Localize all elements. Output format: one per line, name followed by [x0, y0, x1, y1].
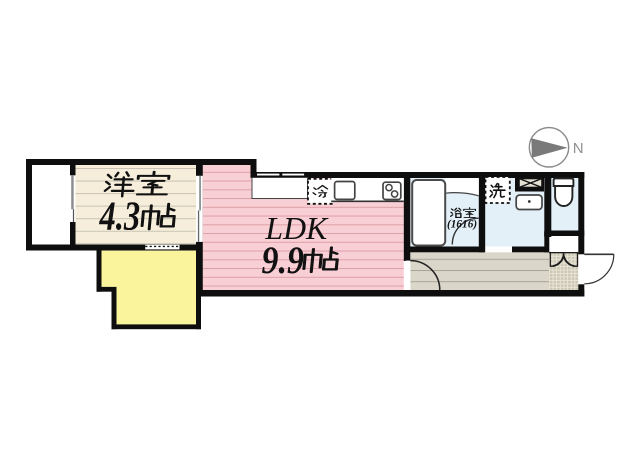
svg-text:4.3: 4.3 [99, 193, 140, 238]
svg-text:N: N [573, 140, 584, 157]
svg-text:9.9: 9.9 [262, 238, 304, 282]
svg-text:(1616): (1616) [447, 219, 477, 231]
